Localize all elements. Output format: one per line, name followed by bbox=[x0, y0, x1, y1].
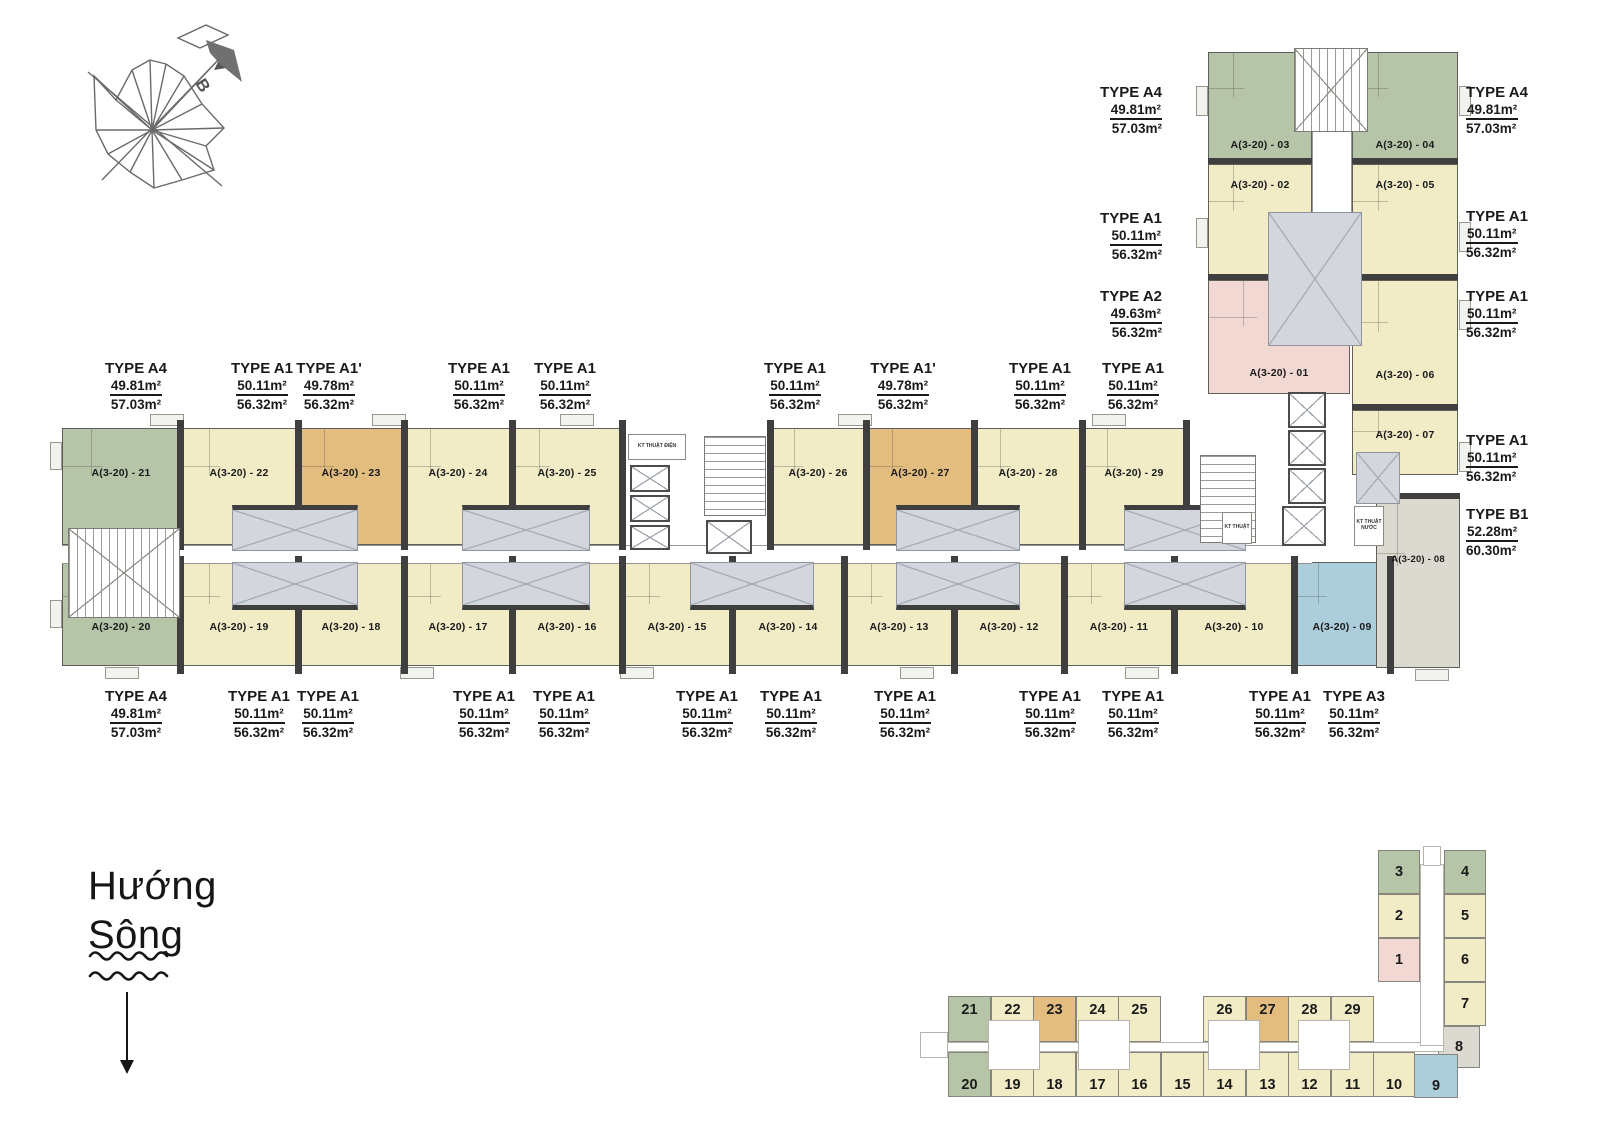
type-label: TYPE A449.81m²57.03m² bbox=[100, 688, 172, 740]
wall-divider bbox=[1061, 556, 1068, 674]
type-label: TYPE A150.11m²56.32m² bbox=[1244, 688, 1316, 740]
structural-core bbox=[1356, 452, 1400, 504]
elevator-shaft bbox=[706, 520, 752, 554]
unit-a05: A(3-20) - 05 bbox=[1352, 164, 1458, 280]
compass-rose: B bbox=[72, 18, 262, 198]
type-label: TYPE A150.11m²56.32m² bbox=[1052, 210, 1162, 262]
wall-divider bbox=[1387, 556, 1394, 674]
wall-divider bbox=[863, 420, 870, 550]
structural-core bbox=[1124, 562, 1246, 610]
minimap-staircase bbox=[920, 1032, 948, 1058]
type-label: TYPE A350.11m²56.32m² bbox=[1318, 688, 1390, 740]
type-label: TYPE A449.81m²57.03m² bbox=[1466, 84, 1576, 136]
minimap-unit: 9 bbox=[1414, 1054, 1458, 1098]
structural-core bbox=[462, 562, 590, 610]
type-label: TYPE A150.11m²56.32m² bbox=[869, 688, 941, 740]
minimap-unit: 20 bbox=[948, 1052, 991, 1097]
type-label: TYPE A150.11m²56.32m² bbox=[1004, 360, 1076, 412]
balcony-ledge bbox=[1196, 86, 1208, 116]
balcony-ledge bbox=[1125, 667, 1159, 679]
elevator-shaft bbox=[630, 465, 670, 492]
type-label: TYPE A150.11m²56.32m² bbox=[1097, 360, 1169, 412]
elevator-shaft bbox=[630, 525, 670, 550]
wall-divider bbox=[1352, 158, 1458, 164]
balcony-ledge bbox=[1196, 218, 1208, 248]
structural-core bbox=[1268, 212, 1362, 346]
type-label: TYPE A150.11m²56.32m² bbox=[1466, 288, 1576, 340]
floor-plan-canvas: B A(3-20) - 21 A(3-20) - 22 A(3-20) - 23… bbox=[0, 0, 1600, 1122]
minimap-unit: 1 bbox=[1378, 938, 1420, 982]
type-label: TYPE A1'49.78m²56.32m² bbox=[293, 360, 365, 412]
minimap-unit: 2 bbox=[1378, 894, 1420, 938]
minimap-unit: 15 bbox=[1161, 1052, 1204, 1097]
wall-divider bbox=[1208, 158, 1312, 164]
type-label: TYPE A249.63m²56.32m² bbox=[1052, 288, 1162, 340]
minimap-corridor bbox=[1420, 864, 1444, 1046]
tech-room-water: KT THUẬT NƯỚC bbox=[1354, 506, 1384, 546]
elevator-shaft bbox=[1288, 430, 1326, 466]
type-label: TYPE A150.11m²56.32m² bbox=[755, 688, 827, 740]
structural-core bbox=[232, 505, 358, 551]
type-label: TYPE A150.11m²56.32m² bbox=[1097, 688, 1169, 740]
wall-divider bbox=[1352, 404, 1458, 410]
type-label: TYPE A150.11m²56.32m² bbox=[1014, 688, 1086, 740]
unit-a26: A(3-20) - 26 bbox=[770, 428, 866, 545]
wall-divider bbox=[401, 556, 408, 674]
type-label: TYPE B152.28m²60.30m² bbox=[1466, 506, 1576, 558]
minimap-core bbox=[988, 1020, 1040, 1070]
type-label: TYPE A150.11m²56.32m² bbox=[528, 688, 600, 740]
type-label: TYPE A449.81m²57.03m² bbox=[100, 360, 172, 412]
structural-core bbox=[896, 562, 1020, 610]
type-label: TYPE A150.11m²56.32m² bbox=[226, 360, 298, 412]
river-direction-label: Hướng Sông bbox=[88, 862, 217, 960]
elevator-shaft bbox=[1282, 506, 1326, 546]
balcony-ledge bbox=[50, 600, 62, 628]
wall-divider bbox=[1352, 274, 1458, 280]
staircase bbox=[1294, 48, 1368, 132]
type-label: TYPE A150.11m²56.32m² bbox=[671, 688, 743, 740]
balcony-ledge bbox=[50, 442, 62, 470]
compass-flag-fill bbox=[206, 40, 242, 82]
type-label: TYPE A150.11m²56.32m² bbox=[443, 360, 515, 412]
minimap-core bbox=[1078, 1020, 1130, 1070]
minimap-unit: 3 bbox=[1378, 850, 1420, 894]
type-label: TYPE A150.11m²56.32m² bbox=[448, 688, 520, 740]
elevator-shaft bbox=[630, 495, 670, 522]
minimap-unit: 5 bbox=[1444, 894, 1486, 938]
type-label: TYPE A150.11m²56.32m² bbox=[529, 360, 601, 412]
structural-core bbox=[896, 505, 1020, 551]
wall-divider bbox=[619, 556, 626, 674]
elevator-shaft bbox=[1288, 392, 1326, 428]
type-label: TYPE A150.11m²56.32m² bbox=[759, 360, 831, 412]
elevator-shaft bbox=[1288, 468, 1326, 504]
balcony-ledge bbox=[1092, 414, 1126, 426]
balcony-ledge bbox=[1415, 669, 1449, 681]
structural-core bbox=[232, 562, 358, 610]
unit-a06: A(3-20) - 06 bbox=[1352, 280, 1458, 410]
type-label: TYPE A150.11m²56.32m² bbox=[1466, 432, 1576, 484]
minimap-unit: 21 bbox=[948, 996, 991, 1042]
staircase bbox=[68, 528, 180, 618]
balcony-ledge bbox=[105, 667, 139, 679]
compass-flag-outline bbox=[178, 25, 228, 48]
structural-core bbox=[690, 562, 814, 610]
tech-room-electrical: KT THUẬT ĐIỆN bbox=[628, 434, 686, 460]
wall-divider bbox=[767, 420, 774, 550]
balcony-ledge bbox=[900, 667, 934, 679]
staircase bbox=[704, 436, 766, 516]
wall-divider bbox=[841, 556, 848, 674]
type-label: TYPE A150.11m²56.32m² bbox=[292, 688, 364, 740]
wall-divider bbox=[401, 420, 408, 550]
wall-divider bbox=[1291, 556, 1298, 674]
minimap-core bbox=[1298, 1020, 1350, 1070]
minimap-staircase bbox=[1423, 846, 1441, 866]
wall-divider bbox=[1079, 420, 1086, 550]
balcony-ledge bbox=[560, 414, 594, 426]
minimap-unit: 4 bbox=[1444, 850, 1486, 894]
minimap-unit: 7 bbox=[1444, 982, 1486, 1026]
minimap-unit: 10 bbox=[1373, 1052, 1415, 1097]
minimap-unit: 6 bbox=[1444, 938, 1486, 982]
type-label: TYPE A150.11m²56.32m² bbox=[223, 688, 295, 740]
river-waves-and-arrow bbox=[88, 948, 188, 1078]
type-label: TYPE A150.11m²56.32m² bbox=[1466, 208, 1576, 260]
type-label: TYPE A1'49.78m²56.32m² bbox=[867, 360, 939, 412]
minimap-core bbox=[1208, 1020, 1260, 1070]
structural-core bbox=[462, 505, 590, 551]
tech-room: KT THUẬT bbox=[1222, 512, 1252, 544]
type-label: TYPE A449.81m²57.03m² bbox=[1052, 84, 1162, 136]
wall-divider bbox=[619, 420, 626, 550]
